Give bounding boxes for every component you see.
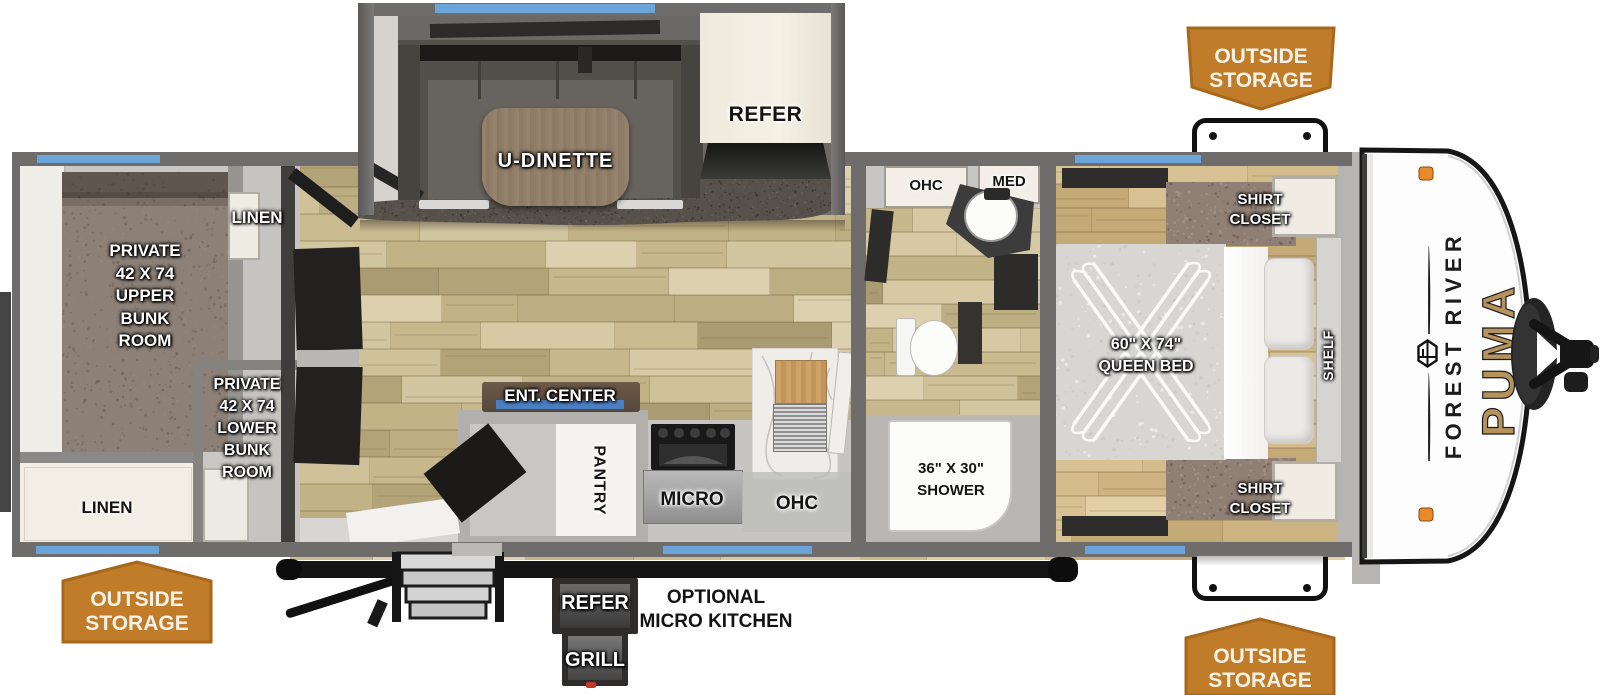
svg-text:STORAGE: STORAGE	[1208, 669, 1311, 692]
svg-text:OUTSIDE: OUTSIDE	[1213, 645, 1306, 668]
